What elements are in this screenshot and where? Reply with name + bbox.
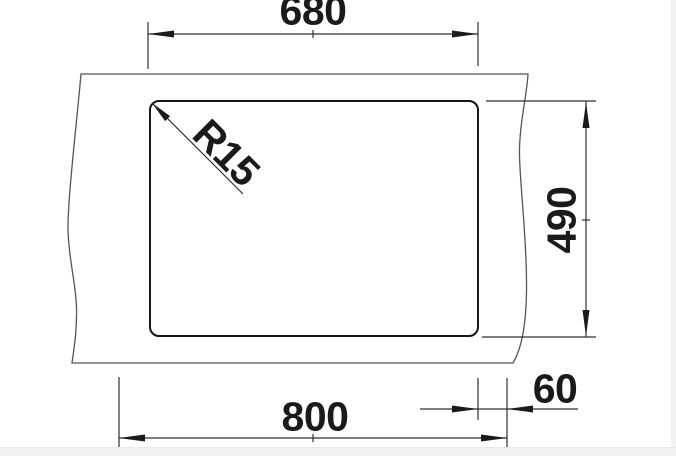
arrowhead-800-left [119, 435, 145, 442]
arrowhead-490-up [583, 102, 590, 128]
arrowhead-60-left [452, 406, 478, 413]
arrowhead-800-right [481, 435, 507, 442]
page-margin-bottom [0, 447, 676, 456]
arrowhead-680-right [452, 31, 478, 38]
arrowhead-490-down [583, 310, 590, 336]
dimension-label-680: 680 [280, 0, 347, 32]
technical-drawing-canvas: 680 490 800 60 R15 [0, 0, 676, 456]
arrowhead-60-right [507, 406, 533, 413]
arrowhead-680-left [148, 31, 174, 38]
dimension-label-60: 60 [533, 369, 578, 410]
page-margin-right [671, 0, 676, 456]
dimension-label-490: 490 [542, 187, 583, 254]
dimension-label-800: 800 [282, 397, 349, 438]
